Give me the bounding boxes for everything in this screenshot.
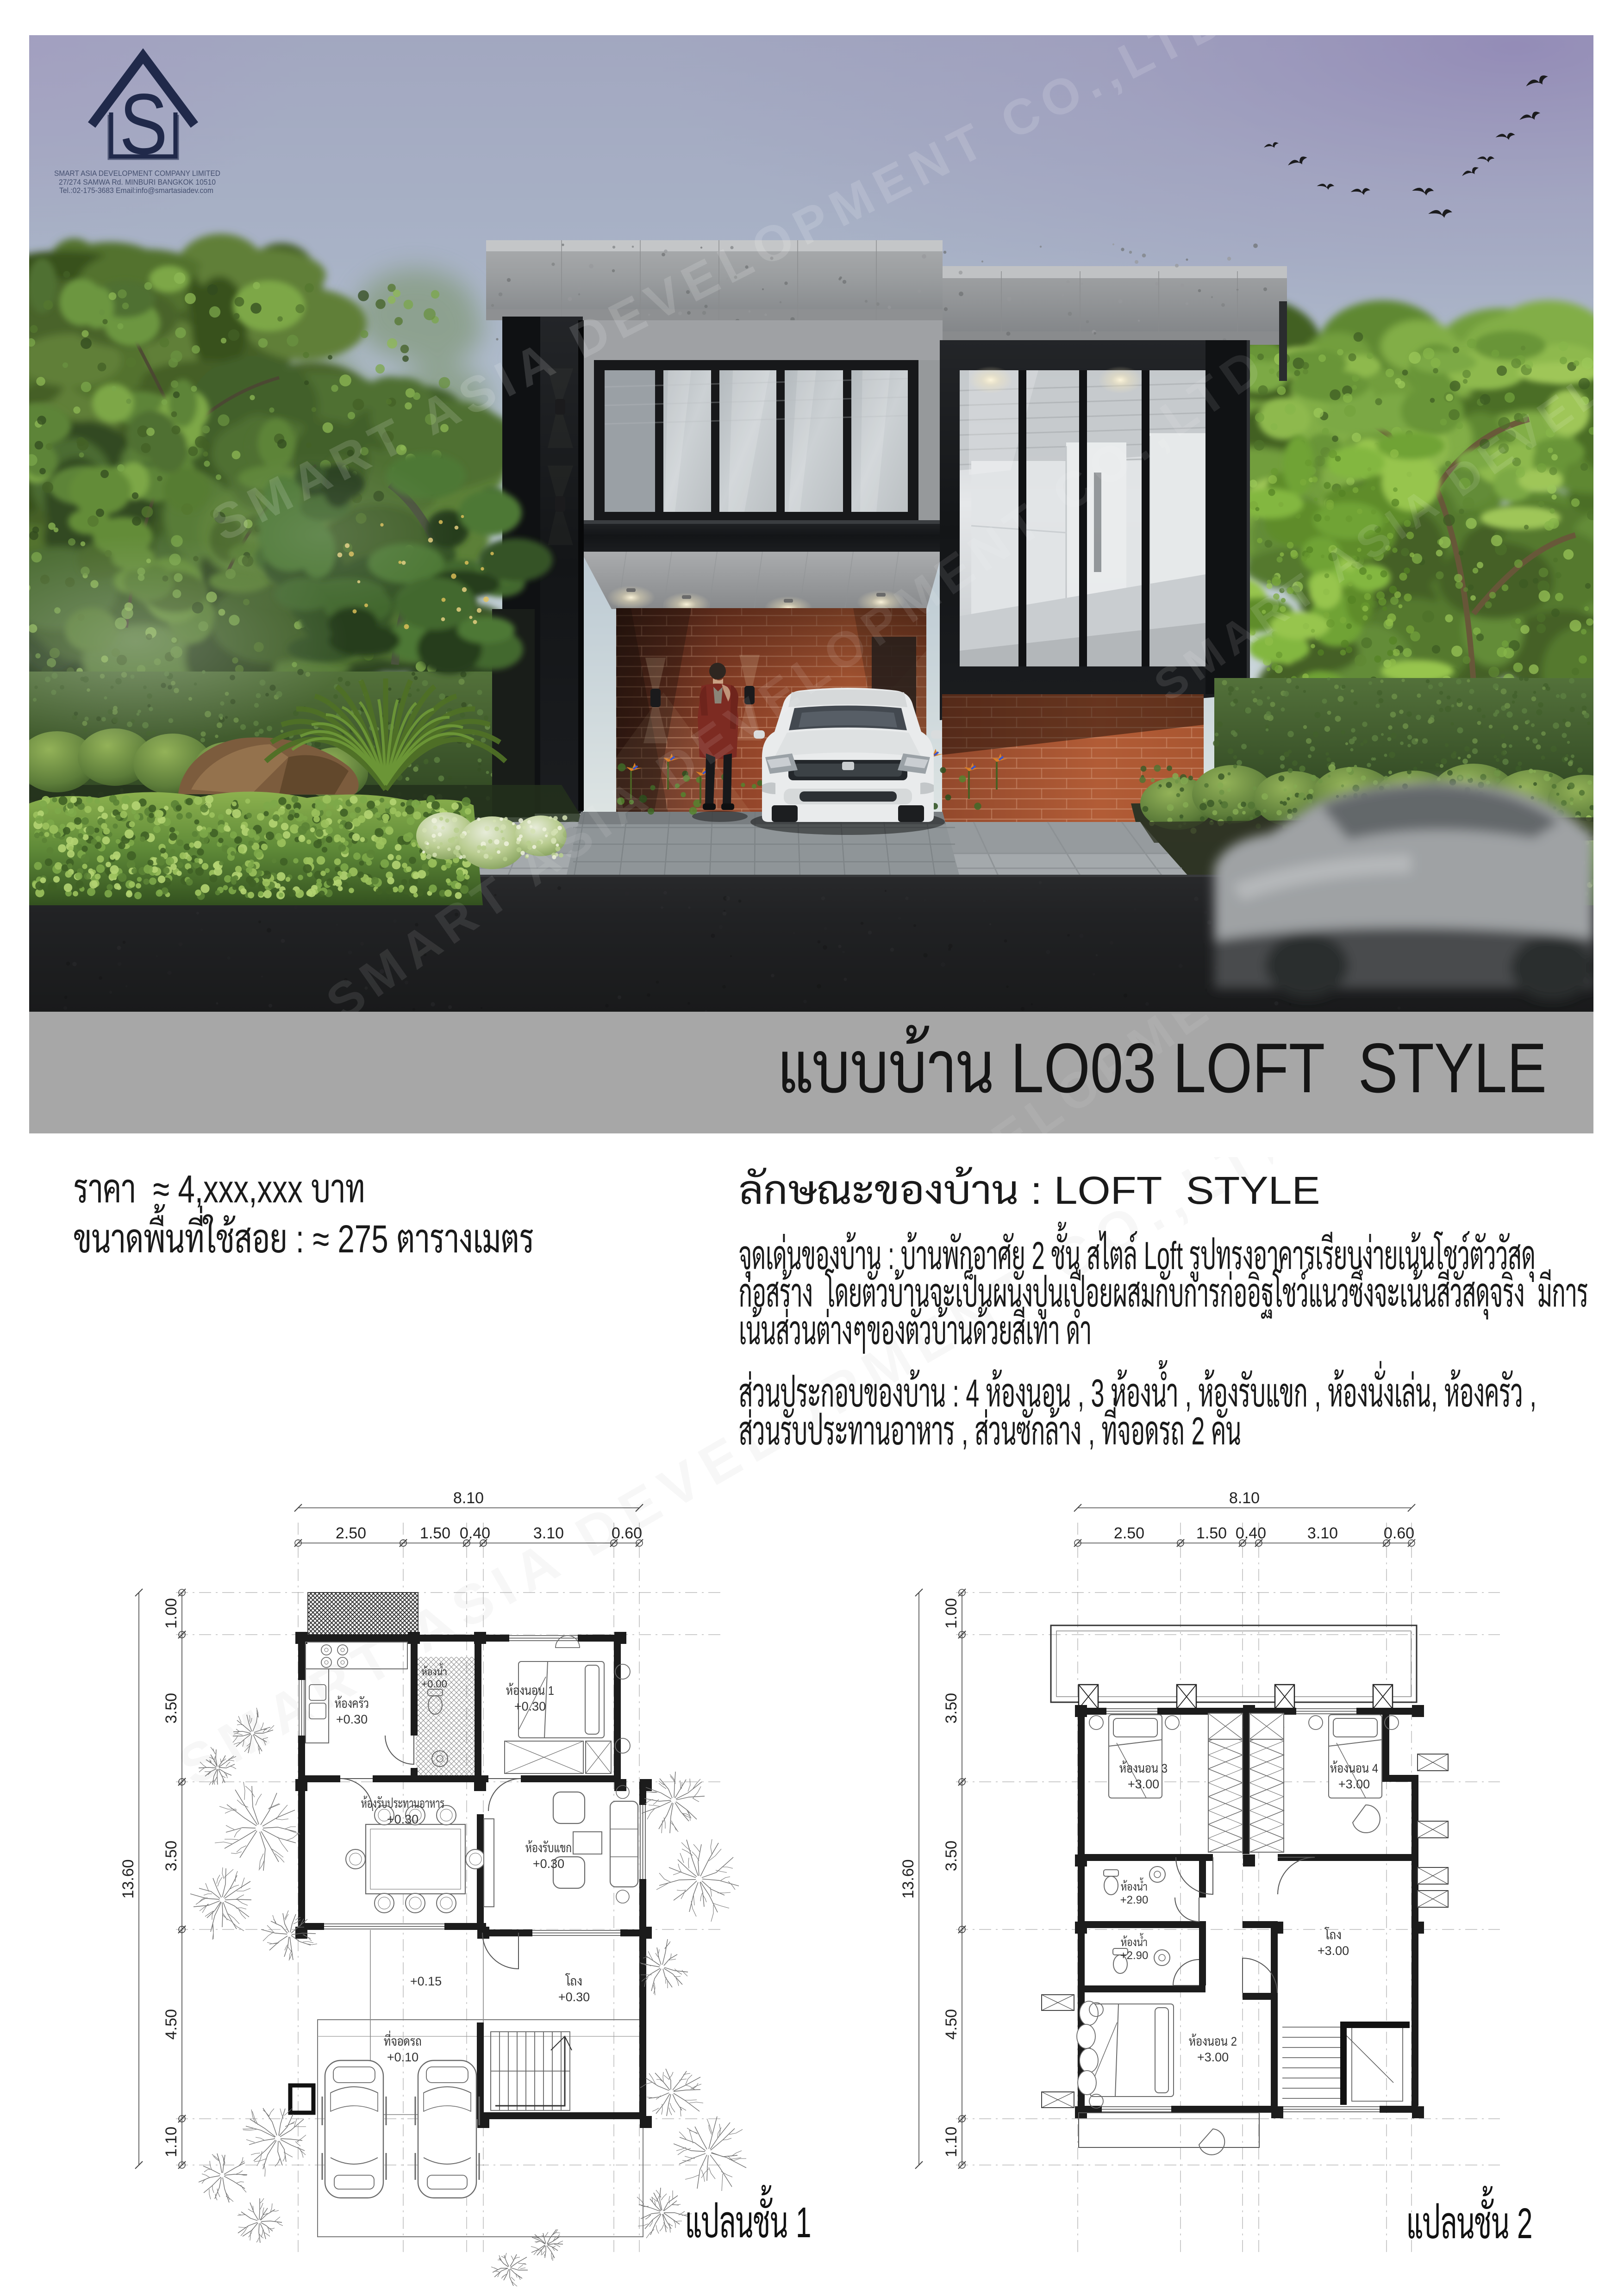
svg-text:+0.00: +0.00 [421, 1678, 447, 1690]
svg-text:ที่จอดรถ: ที่จอดรถ [384, 2030, 422, 2048]
svg-text:8.10: 8.10 [1229, 1489, 1260, 1507]
svg-text:3.50: 3.50 [162, 1693, 180, 1724]
svg-text:ห้องครัว: ห้องครัว [335, 1696, 369, 1711]
svg-text:0.60: 0.60 [1384, 1524, 1414, 1542]
svg-text:ห้องรับประทานอาหาร: ห้องรับประทานอาหาร [361, 1796, 444, 1811]
svg-text:13.60: 13.60 [119, 1859, 137, 1898]
svg-text:โถง: โถง [1324, 1927, 1342, 1942]
svg-text:3.10: 3.10 [1307, 1524, 1338, 1542]
svg-text:+0.30: +0.30 [336, 1712, 368, 1726]
svg-text:ห้องนอน 3: ห้องนอน 3 [1119, 1761, 1168, 1775]
svg-text:1.10: 1.10 [162, 2127, 180, 2157]
svg-text:1.50: 1.50 [1196, 1524, 1227, 1542]
svg-text:4.50: 4.50 [162, 2009, 180, 2040]
svg-text:1.50: 1.50 [420, 1524, 450, 1542]
svg-text:+0.30: +0.30 [558, 1990, 590, 2004]
svg-text:+3.00: +3.00 [1128, 1777, 1159, 1791]
svg-text:ห้องนอน 4: ห้องนอน 4 [1330, 1761, 1378, 1775]
svg-text:+3.00: +3.00 [1318, 1944, 1349, 1958]
svg-text:1.00: 1.00 [943, 1598, 960, 1629]
svg-text:3.10: 3.10 [533, 1524, 564, 1542]
svg-text:0.40: 0.40 [460, 1524, 490, 1542]
svg-text:โถง: โถง [565, 1973, 582, 1988]
svg-text:+0.30: +0.30 [514, 1699, 546, 1713]
svg-text:2.50: 2.50 [1114, 1524, 1144, 1542]
svg-text:+0.15: +0.15 [410, 1974, 442, 1988]
svg-text:13.60: 13.60 [899, 1859, 917, 1898]
svg-text:1.10: 1.10 [943, 2127, 960, 2157]
svg-text:3.50: 3.50 [943, 1693, 960, 1724]
svg-text:ห้องรับแขก: ห้องรับแขก [525, 1840, 572, 1855]
svg-text:0.40: 0.40 [1236, 1524, 1266, 1542]
svg-text:27/274 SAMWA Rd. MINBURI BANGK: 27/274 SAMWA Rd. MINBURI BANGKOK 10510 [59, 178, 216, 187]
svg-text:+0.30: +0.30 [387, 1812, 418, 1826]
svg-text:ห้องน้ำ: ห้องน้ำ [1121, 1933, 1148, 1949]
svg-text:3.50: 3.50 [162, 1841, 180, 1871]
svg-text:Tel.:02-175-3683 Email:info@sm: Tel.:02-175-3683 Email:info@smartasiadev… [59, 186, 213, 195]
svg-text:+0.10: +0.10 [387, 2050, 418, 2064]
svg-text:+0.30: +0.30 [533, 1857, 564, 1871]
svg-text:4.50: 4.50 [943, 2009, 960, 2040]
svg-text:2.50: 2.50 [336, 1524, 366, 1542]
svg-text:+2.90: +2.90 [1120, 1949, 1149, 1962]
svg-text:S: S [119, 76, 168, 172]
svg-text:3.50: 3.50 [943, 1841, 960, 1871]
svg-text:8.10: 8.10 [453, 1489, 484, 1507]
svg-text:ห้องนอน 1: ห้องนอน 1 [506, 1683, 554, 1698]
svg-text:0.60: 0.60 [612, 1524, 642, 1542]
svg-text:+3.00: +3.00 [1197, 2050, 1229, 2064]
svg-text:+3.00: +3.00 [1338, 1777, 1370, 1791]
svg-text:1.00: 1.00 [162, 1598, 180, 1629]
svg-text:ห้องน้ำ: ห้องน้ำ [1121, 1877, 1148, 1893]
svg-text:SMART ASIA DEVELOPMENT COMPANY: SMART ASIA DEVELOPMENT COMPANY LIMITED [54, 169, 220, 178]
svg-text:ห้องนอน 2: ห้องนอน 2 [1189, 2034, 1237, 2048]
svg-text:+2.90: +2.90 [1120, 1894, 1149, 1906]
